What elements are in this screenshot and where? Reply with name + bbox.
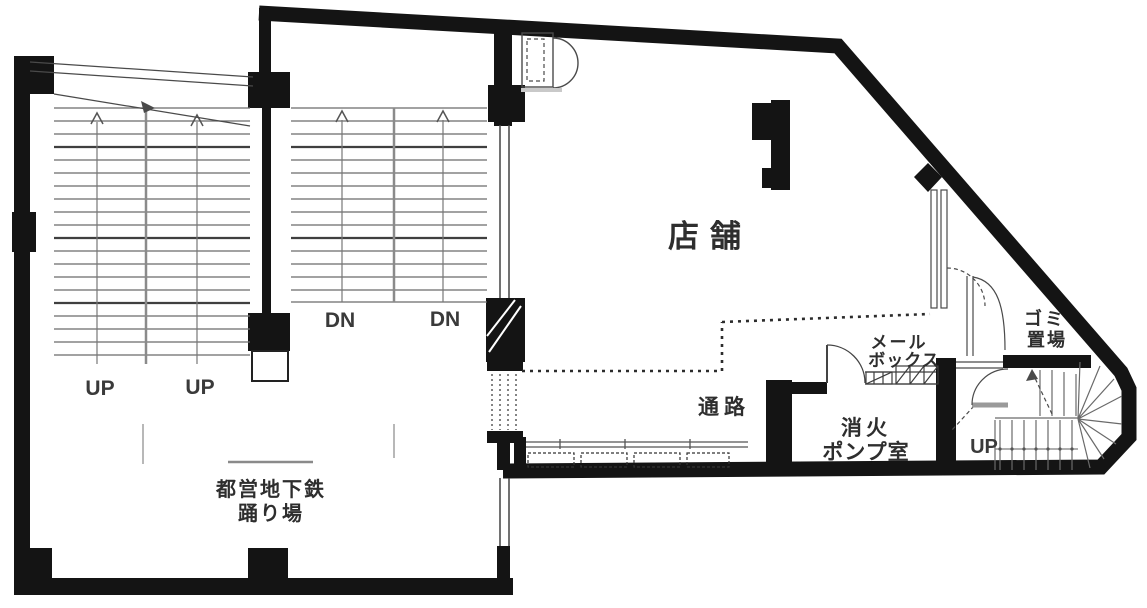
wall-west (14, 56, 30, 594)
landing-marks (143, 424, 394, 464)
floor-plan-canvas: 店舗 通路 メール ボックス 消火 ポンプ室 ゴミ 置場 都営地下鉄 踊り場 U… (0, 0, 1147, 608)
stairs-left-break-arrow (141, 101, 155, 113)
shutter-end-post (514, 437, 526, 470)
label-mailbox-line1: メール (871, 333, 928, 352)
shop-stub-tab (752, 103, 773, 140)
entrance-door-arc-1 (553, 38, 578, 63)
opening-jamb-top (487, 361, 523, 371)
stairs-right-upper-treads (1040, 370, 1076, 416)
center-wall (486, 26, 525, 594)
column-south-mid (248, 548, 288, 582)
glass-partition-1 (931, 190, 937, 308)
opening-dashed-lines (492, 374, 516, 430)
glass-partition-2 (941, 190, 947, 308)
column-stair-junction (248, 313, 290, 351)
label-shop: 店舗 (668, 219, 752, 254)
label-subway-line2: 踊り場 (238, 502, 304, 525)
label-mailbox-line2: ボックス (868, 351, 940, 370)
stairs-right-direction-arrow (1026, 369, 1038, 381)
dotted-segment-3 (722, 314, 930, 322)
wall-center-thin (500, 125, 509, 300)
column-sw (16, 548, 52, 582)
entrance-door-arc-2 (553, 63, 578, 88)
floor-plan-page: 店舗 通路 メール ボックス 消火 ポンプ室 ゴミ 置場 都営地下鉄 踊り場 U… (0, 0, 1147, 608)
wall-top-mid-stub (259, 8, 271, 78)
shutter-lines (520, 442, 748, 447)
shop-stub-vertical (771, 100, 790, 190)
shaft-box (252, 351, 288, 381)
garbage-vestibule (931, 190, 1091, 368)
pump-room-wall-top (792, 382, 827, 394)
wall-center-thin-low (500, 478, 509, 548)
stairs-right-top-thin-wall (956, 362, 1003, 368)
vestibule-door-jamb (967, 276, 973, 356)
vestibule-dashed-door-arc (947, 268, 985, 306)
label-up-left-1: UP (85, 377, 114, 400)
label-dn-1: DN (325, 309, 355, 332)
mailbox-small-hatch (866, 372, 892, 384)
label-dn-2: DN (430, 308, 460, 331)
column-west-mid (12, 212, 36, 252)
landing-stub-lines (143, 424, 394, 464)
vestibule-door-arc (973, 277, 1005, 350)
pump-room-wall-left (766, 380, 792, 471)
stairs-left-treads (54, 108, 250, 355)
pump-room-wall-right (936, 358, 956, 468)
label-passage: 通路 (698, 395, 750, 419)
entrance-dashed-panel (527, 39, 544, 81)
wall-stair-divider (262, 104, 271, 317)
stairs-right-direction-dashed (1034, 376, 1052, 414)
stairs-left-top-edge (30, 62, 253, 86)
pump-room-door-arc (827, 345, 865, 383)
stairs-middle-treads-heavy (291, 147, 487, 238)
stairs-right-door-arc (972, 369, 1008, 405)
wall-center-low2 (497, 546, 510, 594)
shop-stub-foot (762, 168, 772, 188)
label-firepump-line2: ポンプ室 (822, 440, 909, 464)
stairs-middle-treads (291, 108, 487, 302)
label-up-left-2: UP (185, 376, 214, 399)
column-center-top (488, 85, 525, 122)
label-garbage-line2: 置場 (1027, 330, 1067, 350)
label-garbage-line1: ゴミ (1024, 308, 1066, 329)
stairs-middle (291, 108, 487, 302)
label-firepump-line1: 消火 (841, 416, 891, 440)
label-up-right: UP (970, 436, 998, 458)
column-nw (16, 56, 54, 94)
garbage-wall-south (1003, 355, 1091, 368)
shop-stub-walls (752, 100, 942, 192)
entrance-top-door (521, 33, 578, 90)
label-subway-line1: 都営地下鉄 (215, 477, 326, 501)
wall-center-low1 (497, 443, 510, 470)
stairs-left (30, 62, 253, 364)
